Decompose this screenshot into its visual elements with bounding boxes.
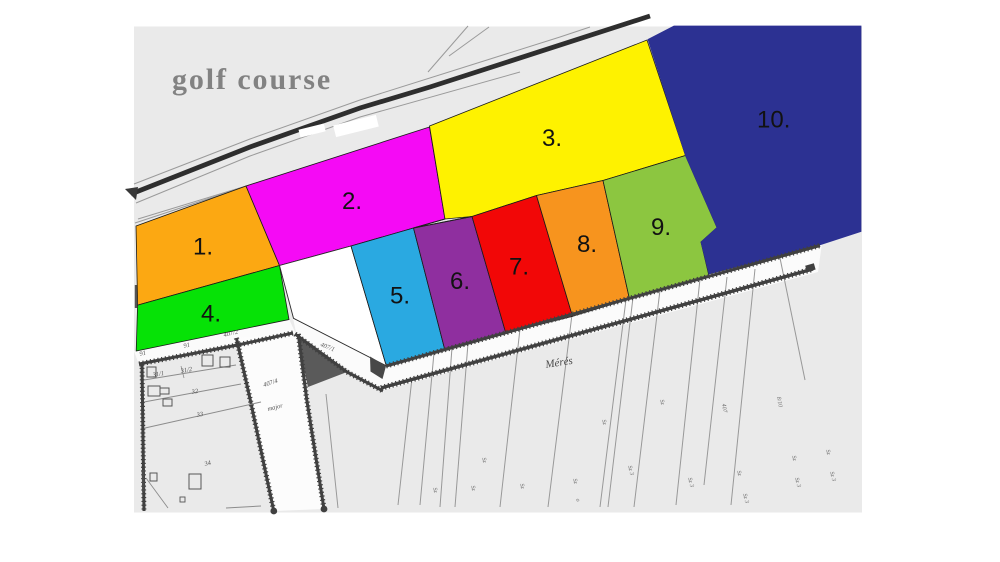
svg-text:7.: 7. [509,254,529,281]
svg-text:10.: 10. [757,107,790,134]
svg-text:4.: 4. [201,301,221,328]
svg-text:2.: 2. [342,188,362,215]
svg-text:3.: 3. [542,125,562,152]
svg-text:1.: 1. [193,234,213,261]
svg-text:8.: 8. [577,231,597,258]
svg-text:9.: 9. [651,214,671,241]
svg-text:5.: 5. [390,283,410,310]
svg-text:6.: 6. [450,268,470,295]
svg-text:golf course: golf course [172,63,332,96]
